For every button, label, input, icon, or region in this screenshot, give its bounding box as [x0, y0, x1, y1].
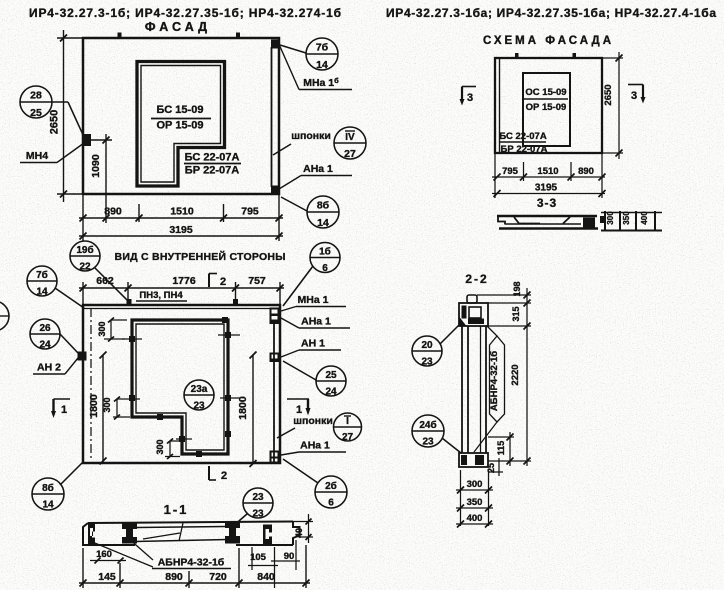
svg-text:ФАСАД: ФАСАД — [145, 20, 211, 34]
svg-text:315: 315 — [511, 306, 521, 321]
svg-text:300: 300 — [155, 439, 165, 454]
svg-text:3-3: 3-3 — [537, 196, 557, 210]
svg-text:40: 40 — [294, 528, 304, 538]
svg-text:24б: 24б — [419, 419, 436, 431]
svg-text:IV: IV — [345, 132, 355, 143]
svg-text:АБНР4-32-1б: АБНР4-32-1б — [158, 557, 225, 569]
svg-text:ОР 15-09: ОР 15-09 — [156, 120, 203, 132]
svg-text:АН 1: АН 1 — [301, 338, 325, 350]
svg-text:БС 22-07А: БС 22-07А — [499, 131, 547, 142]
svg-text:890: 890 — [578, 166, 594, 177]
svg-text:300: 300 — [97, 321, 107, 336]
svg-text:ИР4-32.27.3-1ба; ИР4-32.27.35-: ИР4-32.27.3-1ба; ИР4-32.27.35-1ба; НР4-3… — [386, 6, 716, 20]
svg-text:22: 22 — [79, 262, 91, 273]
svg-text:300: 300 — [102, 397, 112, 412]
svg-text:ПН3, ПН4: ПН3, ПН4 — [139, 290, 183, 301]
svg-text:2б: 2б — [325, 480, 337, 492]
svg-text:23: 23 — [252, 509, 264, 520]
svg-text:7б: 7б — [36, 269, 48, 281]
svg-text:23: 23 — [421, 357, 433, 368]
svg-text:14: 14 — [36, 287, 48, 298]
svg-text:24: 24 — [325, 387, 337, 398]
svg-text:1-1: 1-1 — [164, 502, 189, 517]
svg-text:14: 14 — [42, 500, 54, 511]
svg-text:7б: 7б — [316, 42, 329, 54]
svg-text:МН4: МН4 — [26, 150, 48, 162]
svg-text:1090: 1090 — [90, 154, 102, 178]
svg-text:795: 795 — [241, 206, 259, 218]
svg-text:3: 3 — [631, 90, 637, 102]
svg-text:720: 720 — [209, 571, 227, 583]
svg-text:350: 350 — [622, 211, 631, 225]
svg-text:I: I — [346, 416, 349, 427]
svg-text:1б: 1б — [319, 246, 331, 258]
svg-text:1776: 1776 — [172, 275, 196, 287]
svg-text:20: 20 — [421, 340, 433, 351]
svg-text:АНа 1: АНа 1 — [300, 440, 330, 452]
svg-text:350: 350 — [467, 497, 483, 508]
svg-text:2-2: 2-2 — [465, 272, 488, 286]
svg-text:14: 14 — [317, 217, 329, 229]
svg-text:400: 400 — [467, 513, 483, 524]
svg-text:27: 27 — [344, 148, 356, 160]
svg-text:400: 400 — [640, 211, 649, 225]
svg-text:2650: 2650 — [603, 84, 614, 105]
svg-text:ОР 15-09: ОР 15-09 — [526, 102, 567, 113]
svg-text:23: 23 — [252, 492, 264, 503]
svg-text:25: 25 — [486, 463, 496, 473]
svg-text:198: 198 — [512, 281, 522, 296]
svg-text:6: 6 — [322, 263, 328, 274]
svg-text:145: 145 — [98, 571, 116, 583]
svg-text:25: 25 — [325, 370, 337, 381]
svg-text:24: 24 — [39, 340, 51, 351]
svg-text:шпонки: шпонки — [293, 415, 333, 427]
svg-text:115: 115 — [496, 441, 506, 456]
svg-text:795: 795 — [502, 166, 519, 177]
svg-text:2: 2 — [220, 276, 226, 288]
svg-text:АБНР4-32-1б: АБНР4-32-1б — [489, 351, 500, 411]
svg-text:3195: 3195 — [169, 224, 193, 236]
svg-text:БС 22-07А: БС 22-07А — [185, 152, 240, 164]
svg-text:шпонки: шпонки — [291, 130, 331, 142]
svg-text:2650: 2650 — [49, 110, 61, 134]
svg-text:6: 6 — [328, 498, 334, 509]
svg-text:3: 3 — [467, 92, 473, 104]
svg-text:23: 23 — [193, 401, 205, 412]
svg-text:2: 2 — [221, 470, 227, 482]
svg-text:2220: 2220 — [510, 364, 521, 385]
svg-text:19б: 19б — [76, 244, 93, 256]
svg-text:1800: 1800 — [88, 394, 100, 418]
svg-text:28: 28 — [30, 90, 42, 102]
svg-text:АН 2: АН 2 — [37, 362, 61, 374]
svg-text:23: 23 — [422, 437, 434, 448]
svg-text:90: 90 — [284, 551, 295, 562]
svg-text:БР 22-07А: БР 22-07А — [501, 144, 548, 155]
svg-text:БР 22-07А: БР 22-07А — [185, 165, 239, 177]
svg-text:МНа 1б: МНа 1б — [303, 76, 339, 89]
svg-text:8б: 8б — [42, 482, 54, 494]
svg-text:23а: 23а — [191, 384, 208, 395]
svg-text:14: 14 — [316, 59, 328, 71]
svg-text:3195: 3195 — [535, 183, 558, 194]
svg-text:ОС 15-09: ОС 15-09 — [525, 87, 566, 98]
svg-text:АНа 1: АНа 1 — [303, 163, 333, 175]
svg-text:ИР4-32.27.3-1б; ИР4-32.27.35-1: ИР4-32.27.3-1б; ИР4-32.27.35-1б; НР4-32.… — [29, 6, 341, 20]
svg-text:8б: 8б — [317, 200, 330, 212]
svg-text:757: 757 — [248, 275, 266, 287]
svg-text:25: 25 — [30, 107, 42, 119]
svg-text:1: 1 — [61, 404, 67, 416]
svg-text:890: 890 — [165, 571, 183, 583]
svg-text:27: 27 — [342, 432, 354, 443]
svg-text:1800: 1800 — [237, 396, 249, 420]
svg-text:840: 840 — [257, 571, 275, 583]
svg-text:300: 300 — [606, 211, 615, 225]
svg-text:ВИД С ВНУТРЕННЕЙ СТОРОНЫ: ВИД С ВНУТРЕННЕЙ СТОРОНЫ — [115, 250, 286, 263]
svg-text:300: 300 — [467, 479, 483, 490]
svg-text:1510: 1510 — [170, 206, 194, 218]
svg-text:АНа 1: АНа 1 — [301, 316, 331, 328]
svg-text:МНа 1: МНа 1 — [298, 294, 329, 306]
svg-text:1510: 1510 — [537, 166, 558, 177]
svg-text:БС 15-09: БС 15-09 — [157, 104, 204, 116]
svg-text:890: 890 — [104, 206, 122, 218]
svg-text:26: 26 — [39, 323, 51, 334]
